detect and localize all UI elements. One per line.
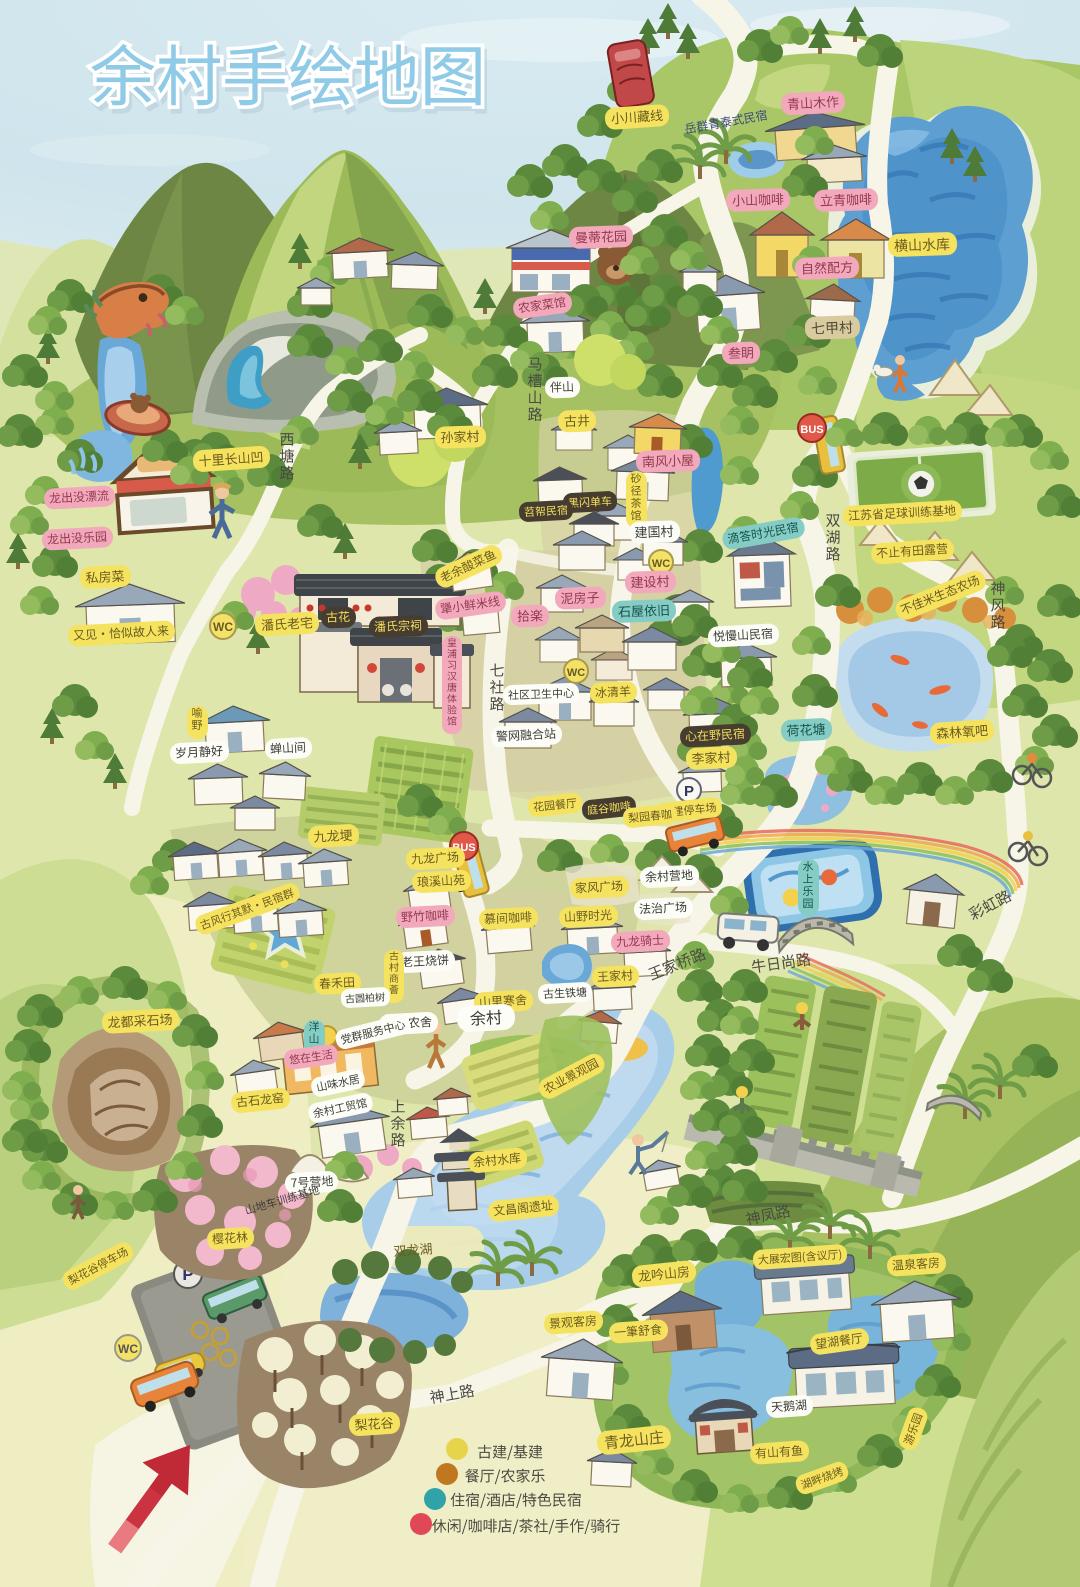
svg-text:WC: WC — [213, 620, 233, 634]
svg-text:WC: WC — [567, 667, 585, 679]
svg-text:P: P — [684, 783, 694, 800]
svg-text:BUS: BUS — [800, 424, 823, 436]
svg-text:WC: WC — [652, 558, 670, 570]
svg-text:WC: WC — [118, 1342, 138, 1356]
